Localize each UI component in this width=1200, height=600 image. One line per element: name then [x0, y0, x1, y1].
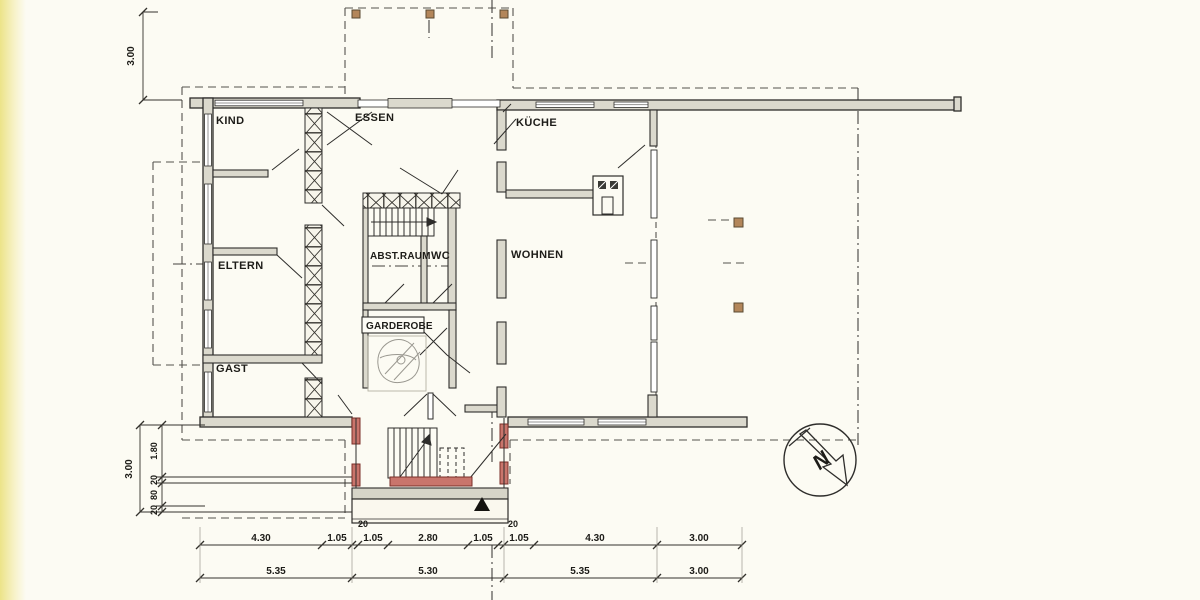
- dim-row2-2: 5.35: [570, 566, 590, 577]
- dim-row2-1: 5.30: [418, 566, 438, 577]
- room-label-eltern: ELTERN: [218, 260, 264, 272]
- room-label-essen: ESSEN: [355, 112, 394, 124]
- room-label-abstellraum: ABST.RAUM: [370, 251, 431, 262]
- dim-row2-0: 5.35: [266, 566, 286, 577]
- dim-row1-0: 4.30: [251, 533, 271, 544]
- room-label-gast: GAST: [216, 363, 248, 375]
- dim-chain-20b: 20: [149, 505, 159, 515]
- dim-vertical-top: 3.00: [126, 46, 137, 66]
- terrace-glass-doors: [651, 150, 657, 392]
- dim-row1-6: 4.30: [585, 533, 605, 544]
- dim-row1-1: 1.05: [327, 533, 347, 544]
- room-label-garderobe: GARDEROBE: [366, 321, 433, 332]
- dim-row1-2: 1.05: [363, 533, 383, 544]
- dim-row2-3: 3.00: [689, 566, 709, 577]
- scan-edge-strip: [0, 0, 26, 600]
- floor-plan-canvas: N KIND ESSEN KÜCHE ELTERN ABST.RAUM WC W…: [0, 0, 1200, 600]
- scanned-floor-plan-page: N KIND ESSEN KÜCHE ELTERN ABST.RAUM WC W…: [0, 0, 1200, 600]
- dim-chain-20a: 20: [149, 475, 159, 485]
- dim-row1-4: 1.05: [473, 533, 493, 544]
- room-label-kueche: KÜCHE: [516, 116, 557, 129]
- chimney-block: [593, 176, 623, 215]
- dim-row1-7: 3.00: [689, 533, 709, 544]
- dim-vertical-total: 3.00: [124, 459, 135, 479]
- dim-row1-3: 2.80: [418, 533, 438, 544]
- dim-wall-20-left: 20: [358, 519, 368, 529]
- dim-chain-180: 1.80: [149, 442, 159, 460]
- room-label-kind: KIND: [216, 115, 245, 127]
- room-label-wohnen: WOHNEN: [511, 249, 564, 261]
- front-door-leaf: [428, 393, 433, 419]
- porch-platform: [352, 488, 508, 499]
- paper-background: [0, 0, 1200, 600]
- dim-chain-80: 80: [149, 490, 159, 500]
- dim-wall-20-right: 20: [508, 519, 518, 529]
- dim-row1-5: 1.05: [509, 533, 529, 544]
- room-label-wc: WC: [431, 250, 450, 262]
- stair-landing-red: [390, 477, 472, 486]
